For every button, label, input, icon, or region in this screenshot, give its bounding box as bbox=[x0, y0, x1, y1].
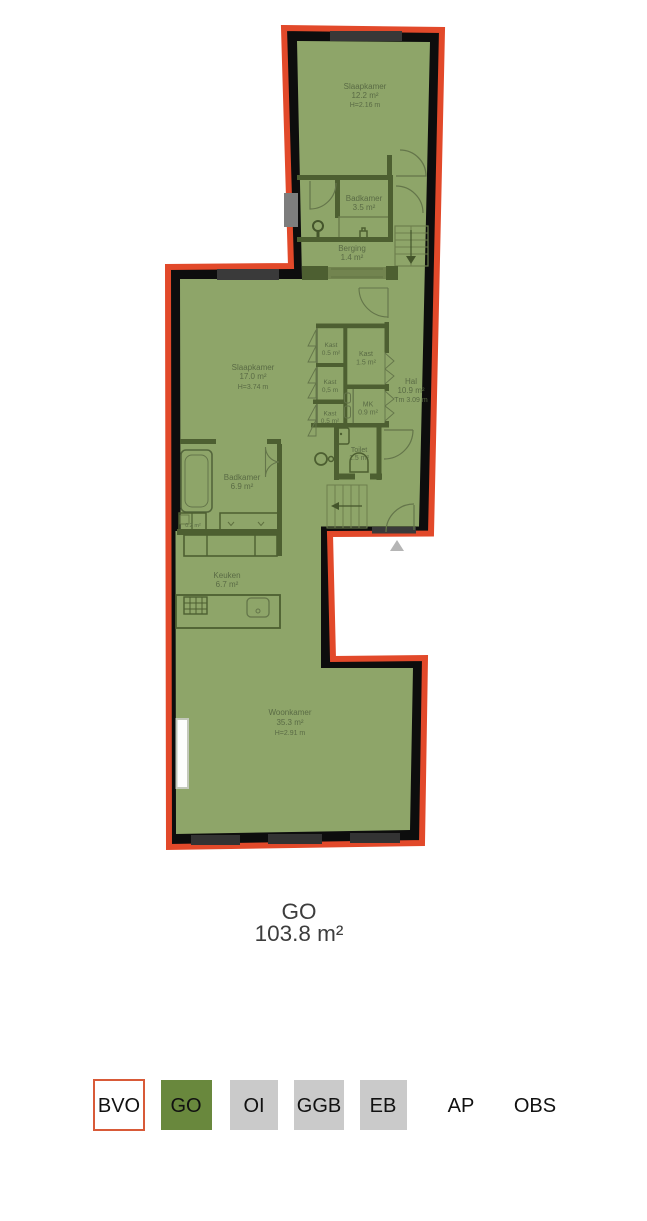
svg-text:EB: EB bbox=[370, 1095, 397, 1117]
svg-text:Kast: Kast bbox=[359, 351, 373, 358]
svg-text:0.5 m²: 0.5 m² bbox=[322, 350, 341, 357]
svg-text:103.8 m²: 103.8 m² bbox=[255, 921, 344, 946]
svg-text:35.3 m²: 35.3 m² bbox=[276, 718, 303, 727]
svg-text:0,5 m: 0,5 m bbox=[322, 387, 338, 394]
svg-text:GO: GO bbox=[170, 1095, 201, 1117]
svg-text:Woonkamer: Woonkamer bbox=[269, 708, 312, 717]
svg-text:Kast: Kast bbox=[324, 342, 337, 349]
svg-text:Keuken: Keuken bbox=[213, 571, 240, 580]
svg-text:1.4 m²: 1.4 m² bbox=[341, 253, 364, 262]
svg-text:BVO: BVO bbox=[98, 1095, 140, 1117]
svg-text:0.2 m²: 0.2 m² bbox=[185, 523, 201, 529]
svg-text:0.9 m²: 0.9 m² bbox=[358, 410, 379, 417]
svg-text:Slaapkamer: Slaapkamer bbox=[344, 82, 387, 91]
svg-text:H=2.16 m: H=2.16 m bbox=[350, 102, 381, 109]
svg-text:H=2.91 m: H=2.91 m bbox=[275, 730, 306, 737]
svg-text:GGB: GGB bbox=[297, 1095, 341, 1117]
svg-text:AP: AP bbox=[448, 1095, 475, 1117]
svg-text:Tm 3.09 m: Tm 3.09 m bbox=[394, 397, 428, 404]
svg-text:3.5 m²: 3.5 m² bbox=[353, 203, 376, 212]
svg-text:Slaapkamer: Slaapkamer bbox=[232, 363, 275, 372]
svg-text:H=3.74 m: H=3.74 m bbox=[238, 384, 269, 391]
svg-text:OI: OI bbox=[243, 1095, 264, 1117]
svg-text:12.2 m²: 12.2 m² bbox=[351, 91, 378, 100]
svg-text:17.0 m²: 17.0 m² bbox=[239, 372, 266, 381]
svg-text:Kast: Kast bbox=[323, 379, 336, 386]
svg-text:1.5 m²: 1.5 m² bbox=[356, 360, 377, 367]
svg-text:MK: MK bbox=[363, 402, 374, 409]
svg-text:6.7 m²: 6.7 m² bbox=[216, 580, 239, 589]
svg-text:OBS: OBS bbox=[514, 1095, 556, 1117]
svg-text:Berging: Berging bbox=[338, 244, 366, 253]
svg-text:Hal: Hal bbox=[405, 377, 417, 386]
svg-text:Badkamer: Badkamer bbox=[224, 473, 261, 482]
svg-text:Kast: Kast bbox=[323, 411, 336, 418]
svg-text:10.9 m²: 10.9 m² bbox=[397, 386, 424, 395]
svg-text:6.9 m²: 6.9 m² bbox=[231, 482, 254, 491]
svg-text:Badkamer: Badkamer bbox=[346, 194, 383, 203]
